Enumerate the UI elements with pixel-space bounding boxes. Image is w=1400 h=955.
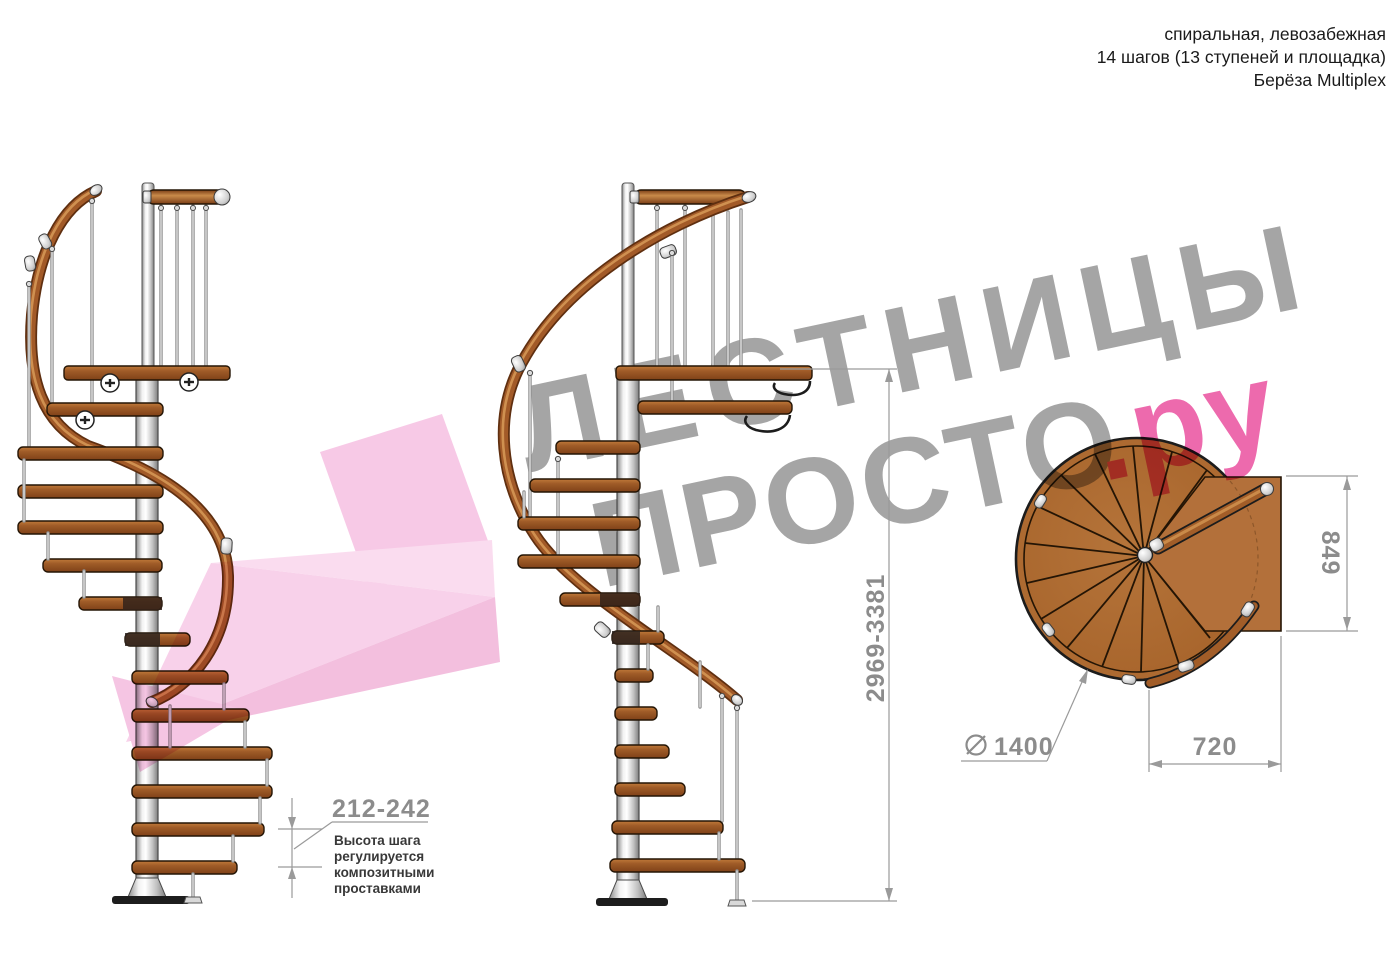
- dim-diameter: 1400: [961, 669, 1088, 761]
- platform-step: [616, 366, 812, 380]
- spec-line-2: 14 шагов (13 ступеней и площадка): [1097, 47, 1386, 67]
- step: [43, 559, 162, 572]
- step: [18, 521, 163, 534]
- step: [615, 745, 669, 758]
- step: [615, 669, 653, 682]
- step: [518, 517, 640, 530]
- drawing-sheet: ЛЕСТНИЦЫ ПРОСТО .ру: [0, 0, 1400, 955]
- step: [612, 821, 723, 834]
- top-rail-cap: [214, 189, 230, 205]
- diameter-value: 1400: [994, 733, 1054, 761]
- watermark-arrow: [112, 414, 500, 772]
- step: [132, 823, 264, 836]
- step: [18, 447, 163, 460]
- dim-step-height-note: Высота шага регулируется композитными пр…: [334, 833, 434, 896]
- upper-post: [142, 183, 154, 383]
- step: [615, 707, 657, 720]
- left-side-view: [18, 182, 272, 904]
- note-line: проставками: [334, 881, 421, 896]
- platform-step: [64, 366, 230, 380]
- landing-width-value: 720: [1193, 733, 1238, 761]
- step: [556, 441, 640, 454]
- dim-landing-side: 849: [1286, 476, 1358, 631]
- step: [638, 401, 792, 414]
- note-line: Высота шага: [334, 833, 421, 848]
- base-plate: [112, 896, 190, 904]
- step: [18, 485, 163, 498]
- step: [47, 403, 163, 416]
- base-plate: [596, 898, 668, 906]
- dim-step-height: 212-242 Высота шага регулируется компози…: [278, 795, 434, 898]
- step: [132, 785, 272, 798]
- note-line: композитными: [334, 865, 434, 880]
- spec-header: спиральная, левозабежная 14 шагов (13 ст…: [1097, 24, 1387, 90]
- step-height-value: 212-242: [332, 795, 431, 823]
- total-height-value: 2969-3381: [862, 574, 890, 703]
- step: [132, 861, 237, 874]
- step: [615, 783, 685, 796]
- upper-post: [622, 183, 634, 383]
- landing-side-value: 849: [1316, 531, 1344, 576]
- note-line: регулируется: [334, 849, 424, 864]
- spec-line-1: спиральная, левозабежная: [1164, 24, 1386, 44]
- step: [518, 555, 640, 568]
- plan-center-pole: [1138, 548, 1153, 563]
- platform-balustrade: [143, 189, 230, 366]
- step: [610, 859, 745, 872]
- step: [530, 479, 640, 492]
- drawing-canvas: ЛЕСТНИЦЫ ПРОСТО .ру: [0, 0, 1400, 955]
- spec-line-3: Берёза Multiplex: [1254, 70, 1387, 90]
